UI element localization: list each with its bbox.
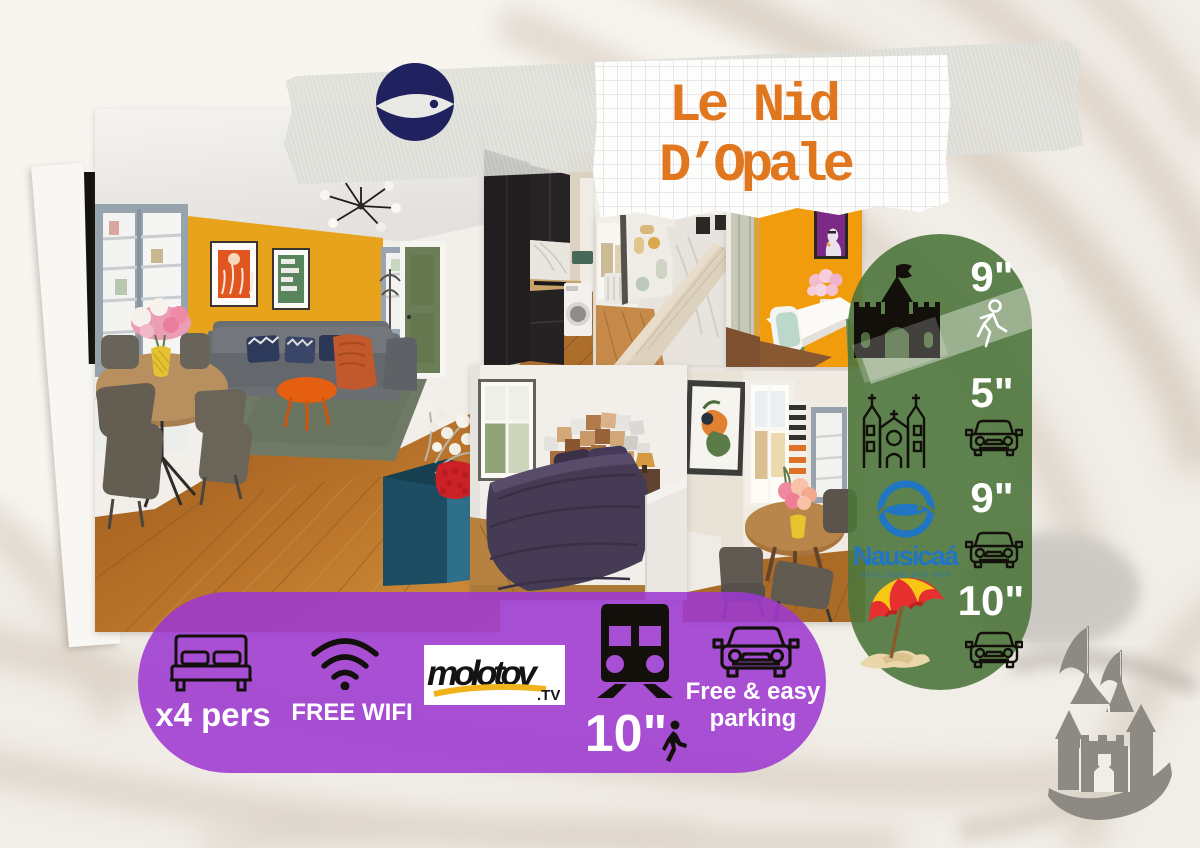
svg-text:Le Nid: Le Nid xyxy=(669,76,841,137)
svg-text:Nausicaá: Nausicaá xyxy=(853,541,960,571)
svg-text:D’Opale: D’Opale xyxy=(659,136,855,197)
svg-text:.TV: .TV xyxy=(537,687,560,704)
